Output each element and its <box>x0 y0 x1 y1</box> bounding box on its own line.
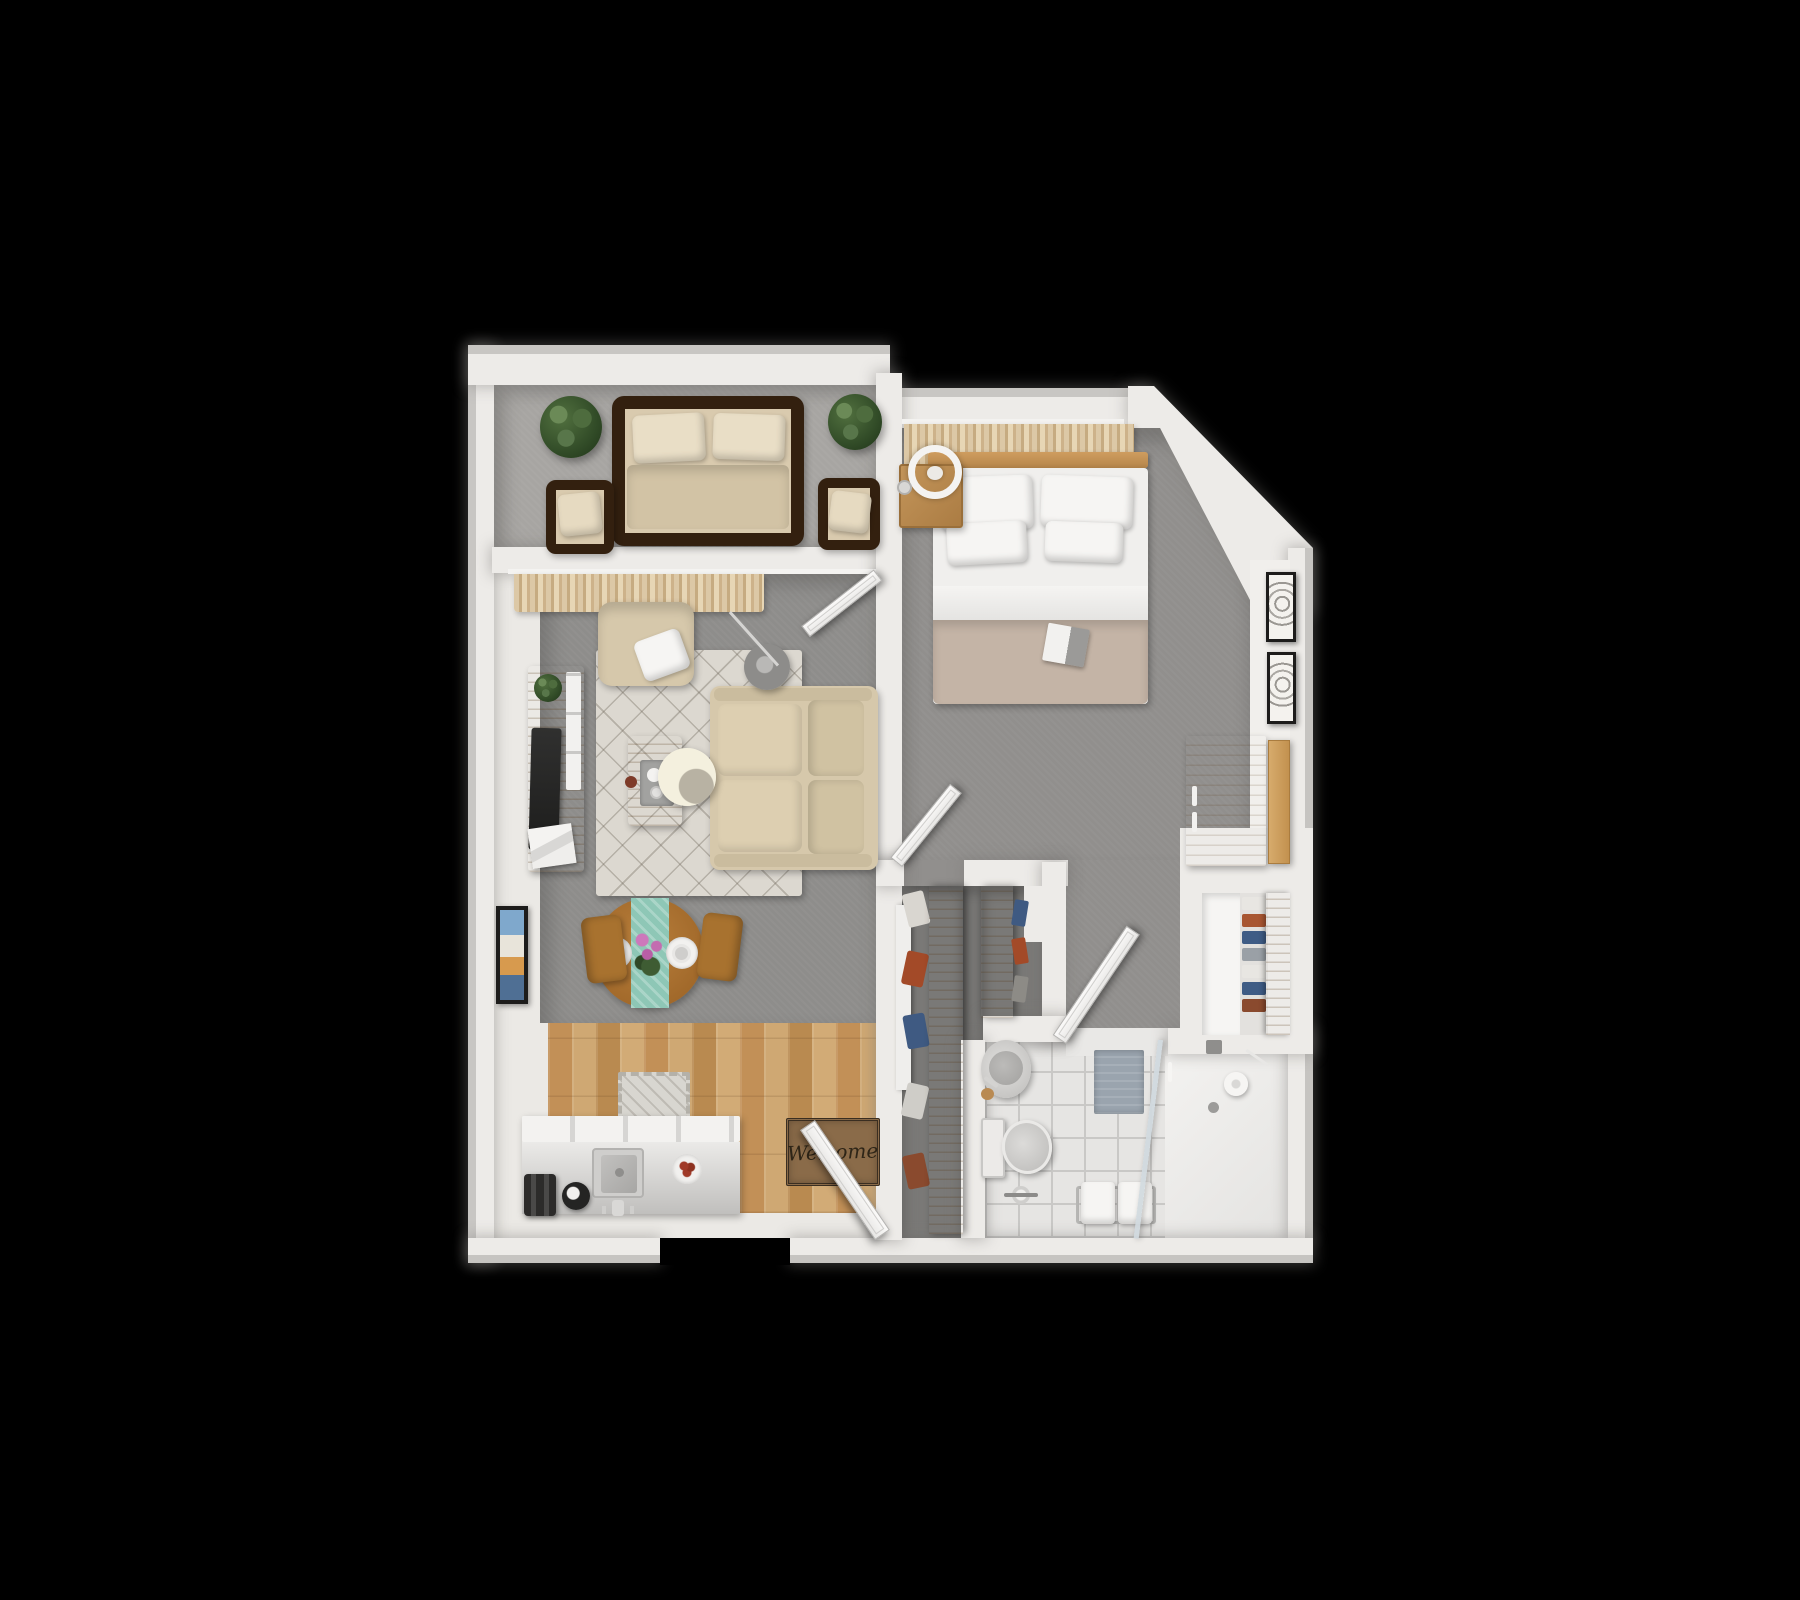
outer-wall-balcony-top <box>468 345 890 385</box>
wardrobe-open-door <box>1268 740 1290 864</box>
folded-linen <box>1242 999 1266 1012</box>
folded-linen <box>1242 914 1266 927</box>
linen-closet-interior <box>1202 893 1242 1035</box>
balcony-chair-right <box>818 478 880 550</box>
kettle <box>562 1182 590 1210</box>
console-drawers <box>566 672 581 790</box>
soap-dish <box>981 1088 994 1100</box>
counter-drawer-fronts <box>522 1116 740 1142</box>
balcony-plant-left <box>540 396 602 458</box>
balcony-sofa-seat <box>627 465 789 529</box>
shower-head <box>1224 1072 1248 1096</box>
folded-linen <box>1242 982 1266 995</box>
sink-faucet <box>612 1200 624 1216</box>
closet-strip-floor <box>963 886 983 1040</box>
balcony-plant-right <box>828 394 882 450</box>
kitchen-sink <box>592 1148 644 1198</box>
outer-wall-bottom-left <box>468 1238 660 1263</box>
shower-control <box>1206 1040 1222 1054</box>
folded-linen <box>1242 965 1266 978</box>
bowl-right <box>672 944 691 963</box>
hanging-clothes-item <box>901 890 931 928</box>
tv-console <box>528 666 584 872</box>
nightstand-ring-lamp <box>908 445 962 499</box>
coffee-table-coaster <box>625 776 637 788</box>
bed-sheet-fold <box>933 586 1148 620</box>
folded-linen <box>1242 897 1266 910</box>
paper-stand-bar <box>1004 1193 1038 1197</box>
hanging-clothes-item <box>1011 899 1029 927</box>
walkin-closet-shelf <box>929 886 963 1234</box>
hanging-clothes-item <box>902 1152 931 1190</box>
sink-drain <box>615 1168 624 1177</box>
outer-wall-bottom-right <box>790 1238 1313 1263</box>
balcony-chair-left <box>546 480 614 554</box>
floorplan-canvas: Welcome <box>0 0 1800 1600</box>
armchair-pillow <box>632 627 691 683</box>
hanging-clothes-item <box>902 1012 930 1049</box>
wardrobe-handle-top <box>1192 786 1197 806</box>
wardrobe <box>1186 736 1266 866</box>
toaster <box>524 1174 556 1216</box>
bench-towel-right <box>1118 1182 1152 1224</box>
living-wall-art <box>496 906 528 1004</box>
second-closet-clothes <box>1013 900 1029 1004</box>
balcony-chair-right-cushion <box>828 490 873 535</box>
book-on-bed <box>1042 623 1090 668</box>
balcony-sofa-pillow-right <box>712 413 786 461</box>
sofa-seat-cushion-1 <box>718 704 802 776</box>
ring-lamp-center <box>927 466 943 480</box>
bench-towel-left <box>1081 1182 1115 1224</box>
linen-closet-shelves <box>1240 893 1268 1035</box>
kitchen-counter <box>522 1116 740 1214</box>
hanging-clothes-item <box>1011 937 1029 965</box>
wall-picture-frame-top <box>1266 572 1296 642</box>
food-plate <box>672 1154 702 1184</box>
sofa-seat-cushion-2 <box>718 780 802 852</box>
bed-blanket <box>933 620 1148 704</box>
balcony-sofa <box>612 396 804 546</box>
bedroom-doorway-floor <box>904 860 966 886</box>
sofa-arm-bottom <box>714 854 872 867</box>
second-closet-shelf <box>981 886 1013 1018</box>
armchair <box>598 602 694 686</box>
wall-bathroom-top-left <box>983 1016 1067 1042</box>
sink-basin-round <box>989 1051 1023 1085</box>
walkin-closet-clothes <box>903 892 929 1222</box>
sofa-back-cushion-1 <box>808 700 864 776</box>
dining-chair-left <box>580 914 628 984</box>
hanging-clothes-item <box>1011 975 1028 1003</box>
wall-closet-right <box>1042 862 1066 1042</box>
balcony-sofa-pillow-left <box>632 412 706 464</box>
console-plant <box>534 674 562 702</box>
dining-flowers <box>632 928 666 976</box>
hanging-clothes-item <box>900 1082 929 1120</box>
shower-door-handle <box>1168 1062 1172 1082</box>
sofa-back-cushion-2 <box>808 780 864 854</box>
wall-divider-vertical <box>876 373 902 862</box>
entry-doorway-gap <box>660 1238 790 1265</box>
balcony-chair-left-cushion <box>557 491 603 537</box>
toilet-paper-stand <box>1004 1184 1038 1208</box>
dining-chair-right <box>696 912 744 982</box>
bed-pillow-front-right <box>1044 521 1123 564</box>
folded-linen <box>1242 948 1266 961</box>
nightstand-clock <box>897 480 912 495</box>
bed <box>933 468 1148 704</box>
linen-closet-side-panel <box>1266 893 1290 1035</box>
wardrobe-handle-bottom <box>1192 812 1197 832</box>
bath-mat <box>1094 1050 1144 1114</box>
arc-floor-lamp-shade <box>658 748 716 806</box>
wall-picture-frame-bottom <box>1267 652 1296 724</box>
hanging-clothes-item <box>901 950 930 988</box>
console-magazines <box>527 823 576 869</box>
bathroom-sink <box>981 1040 1031 1098</box>
outer-wall-left <box>468 345 494 1263</box>
folded-linen <box>1242 931 1266 944</box>
shower-drain <box>1208 1102 1219 1113</box>
living-sofa <box>710 686 878 870</box>
